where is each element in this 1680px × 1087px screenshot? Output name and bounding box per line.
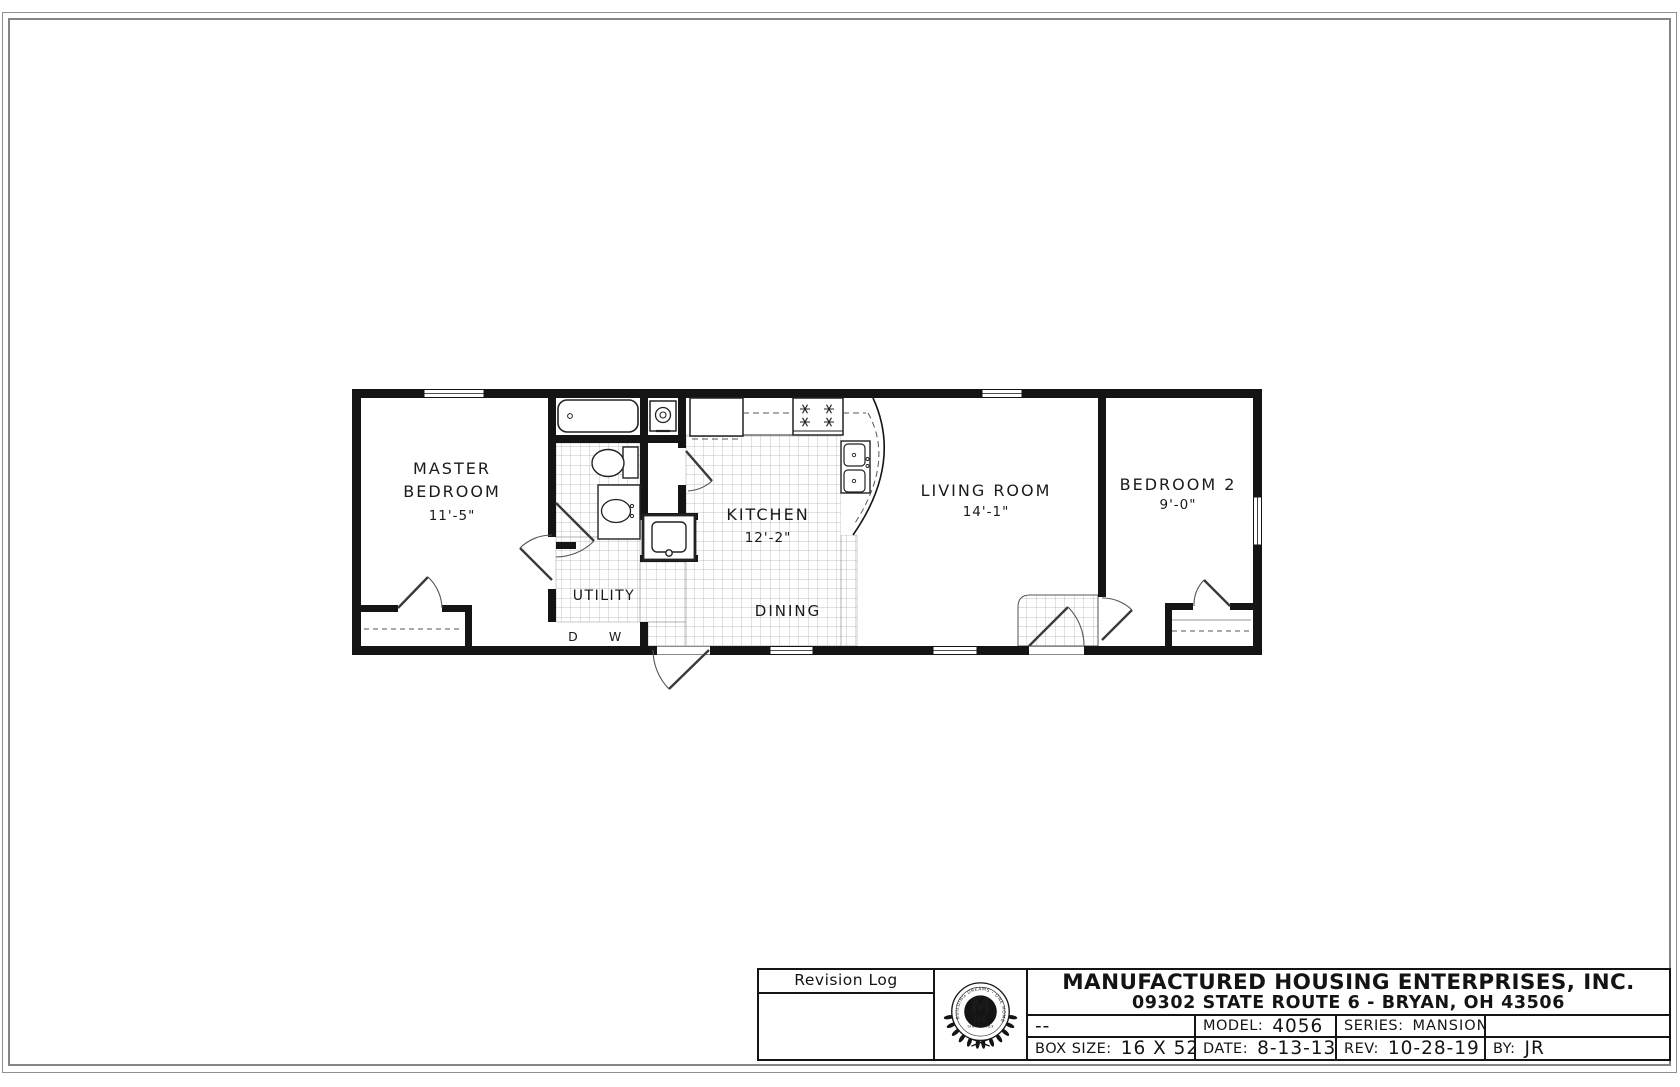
logo-cell: BUILDING DREAMS - ONE HOME AT A TIME M H… [935,970,1028,1059]
logo-since-text: SINCE 1963 [967,1023,993,1028]
revision-entry: -- [1035,1016,1050,1036]
tub-drain [568,414,573,419]
date-value: 8-13-13 [1257,1038,1336,1059]
wall-master-closet-side [465,605,472,646]
wall-master-closet-left [361,605,398,612]
company-block: MANUFACTURED HOUSING ENTERPRISES, INC. 0… [1028,970,1669,1016]
wall-bed2-closet-side [1165,603,1172,646]
wall-exterior-top [352,389,1262,398]
wall-exterior-left [352,389,361,655]
bedroom2-dim: 9'-0" [1160,497,1197,513]
dining-label: DINING [755,602,821,620]
by-value: JR [1524,1038,1544,1059]
rear-door-opening [657,647,710,655]
sink-faucet [866,458,869,461]
wall-master-bath [548,398,556,537]
box-size-value: 16 X 52 [1121,1038,1196,1059]
series-cell: SERIES: MANSION [1337,1016,1486,1036]
wall-bath-hall [640,398,648,513]
dining-floor-strip [841,535,857,646]
by-cell: BY: JR [1486,1038,1669,1059]
box-size-label: BOX SIZE: [1035,1041,1112,1057]
model-label: MODEL: [1203,1018,1263,1034]
entry-tile-pad [1018,595,1098,646]
wall-master-stub [548,589,556,622]
hall-floor-2 [648,622,686,646]
title-row-a: -- MODEL: 4056 SERIES: MANSION [1028,1016,1669,1038]
series-value: MANSION [1412,1018,1486,1034]
wall-niche-kitchen [678,398,686,448]
living-room-label: LIVING ROOM [921,481,1052,500]
master-bedroom-label-2: BEDROOM [403,482,501,501]
by-label: BY: [1493,1041,1515,1057]
vanity-faucet [630,504,633,507]
utility-label: UTILITY [573,588,635,604]
series-label: SERIES: [1344,1018,1403,1034]
refrigerator [690,398,743,436]
window-master-top [424,390,484,398]
kitchen-sink [841,441,870,493]
window-living-bottom [933,647,977,655]
toilet-tank [623,447,638,478]
vanity-sink [602,500,631,523]
rev-value: 10-28-19 [1388,1038,1480,1059]
drawing-sheet: { "page": { "background": "#ffffff", "fr… [0,0,1680,1087]
rev-cell: REV: 10-28-19 [1337,1038,1486,1059]
laundry-appliance [650,401,676,431]
door-rear-exterior [653,650,709,689]
revision-log-cell: Revision Log [759,970,935,1059]
master-bedroom-dim: 11'-5" [429,508,476,524]
living-room-dim: 14'-1" [963,504,1010,520]
date-label: DATE: [1203,1041,1248,1057]
dryer-hookup-label: D [568,629,578,644]
wall-living-bedroom2 [1098,398,1106,597]
wall-dw-stub [640,622,648,646]
floor-plan: MASTER BEDROOM 11'-5" KITCHEN 12'-2" DIN… [352,389,1262,721]
window-dining-bottom [770,647,813,655]
window-living-top [982,390,1022,398]
empty-cell [1486,1016,1669,1036]
bedroom2-label: BEDROOM 2 [1120,475,1237,494]
box-size-cell: BOX SIZE: 16 X 52 [1028,1038,1196,1059]
hall-floor [640,562,686,622]
title-row-b: BOX SIZE: 16 X 52 DATE: 8-13-13 REV: 10-… [1028,1038,1669,1059]
wall-bed2-closet-right [1230,603,1253,610]
stove [793,398,843,435]
company-address: 09302 STATE ROUTE 6 - BRYAN, OH 43506 [1028,994,1669,1013]
kitchen-dim: 12'-2" [745,530,792,546]
company-name: MANUFACTURED HOUSING ENTERPRISES, INC. [1028,971,1669,994]
wall-hall-kitchen-stub [678,485,686,513]
date-cell: DATE: 8-13-13 [1196,1038,1337,1059]
utility-floor [556,537,640,622]
revision-log-title: Revision Log [759,970,933,994]
water-heater [643,515,695,560]
kitchen-label: KITCHEN [726,505,809,524]
toilet-bowl [592,450,624,477]
wall-utility-stub [556,542,576,549]
washer-hookup-label: W [609,629,621,644]
model-cell: MODEL: 4056 [1196,1016,1337,1036]
rev-label: REV: [1344,1041,1379,1057]
wall-tub-alcove [556,435,648,443]
model-value: 4056 [1272,1016,1323,1036]
front-door-opening [1029,647,1084,655]
mhe-logo: BUILDING DREAMS - ONE HOME AT A TIME M H… [935,970,1026,1059]
master-bedroom-label-1: MASTER [413,459,491,478]
vanity-faucet-2 [630,514,633,517]
title-block: Revision Log [757,968,1671,1061]
window-bedroom2-right [1254,497,1262,545]
revision-entry-cell: -- [1028,1016,1196,1036]
